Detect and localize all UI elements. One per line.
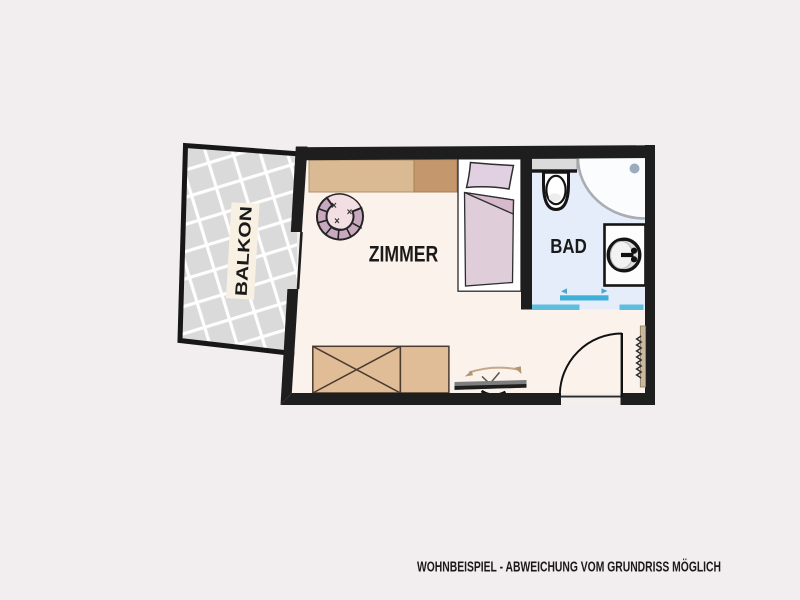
- svg-text:ZIMMER: ZIMMER: [369, 242, 439, 267]
- svg-text:BAD: BAD: [550, 236, 587, 258]
- svg-text:WOHNBEISPIEL - ABWEICHUNG VOM: WOHNBEISPIEL - ABWEICHUNG VOM GRUNDRISS …: [417, 559, 721, 576]
